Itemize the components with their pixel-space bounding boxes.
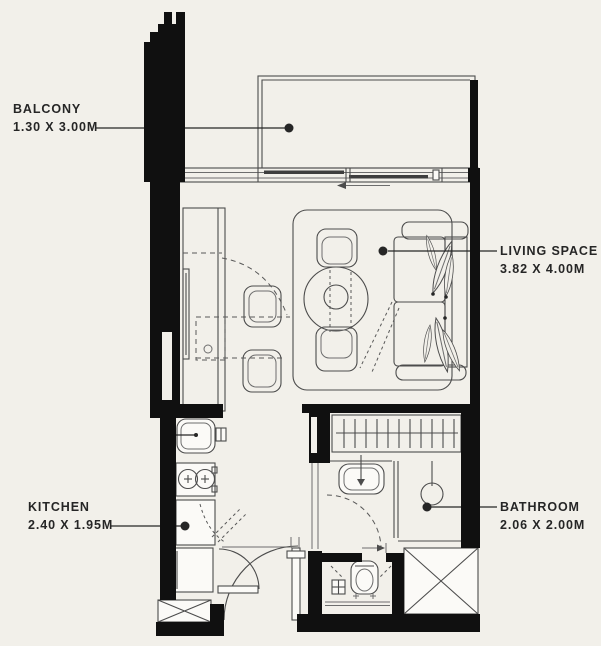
slide-direction-arrow [337,182,390,189]
dining-chair [316,327,357,371]
wall-slot [311,417,317,453]
dining-table [304,267,368,332]
balcony-label-dims: 1.30 X 3.00M [13,118,98,136]
kitchen-label-name: KITCHEN [28,498,113,516]
shaft-box [158,600,211,622]
shaft-box [404,548,478,614]
kitchen-label-dims: 2.40 X 1.95M [28,516,113,534]
bathroom-dot [423,503,432,512]
stove [176,463,217,496]
kitchen-base-cabinet [176,500,215,545]
interior-door [218,549,259,593]
balcony-label: BALCONY 1.30 X 3.00M [13,100,98,136]
kitchen-counter [183,208,290,411]
sliding-door [152,168,478,189]
toilet-door-jamb [362,543,386,553]
wardrobe [332,415,461,452]
living-dot [379,247,388,256]
bathroom-door-swing [327,495,381,549]
fridge [172,548,213,592]
living-space-label-dims: 3.82 X 4.00M [500,260,598,278]
bathroom-label-dims: 2.06 X 2.00M [500,516,585,534]
dining-chair [317,229,357,267]
living-space-label-name: LIVING SPACE [500,242,598,260]
door-handle [287,551,305,558]
balcony-dot [285,124,294,133]
plant-leaves [422,235,464,373]
balcony-label-name: BALCONY [13,100,98,118]
bathroom-label: BATHROOM 2.06 X 2.00M [500,498,585,534]
toilet [325,543,391,606]
toilet-sprayer [332,580,345,594]
balcony-outline [258,76,475,168]
furniture-layer [152,76,478,622]
kitchen-dot [181,522,190,531]
bathroom-label-name: BATHROOM [500,498,585,516]
floor-plan-canvas: BALCONY 1.30 X 3.00M LIVING SPACE 3.82 X… [0,0,601,646]
entry-door [222,537,305,620]
floor-plan [0,0,601,646]
kitchen-label: KITCHEN 2.40 X 1.95M [28,498,113,534]
living-space-label: LIVING SPACE 3.82 X 4.00M [500,242,598,278]
wall-slot [162,332,172,400]
dining-chair [243,350,281,392]
shower [394,461,461,541]
